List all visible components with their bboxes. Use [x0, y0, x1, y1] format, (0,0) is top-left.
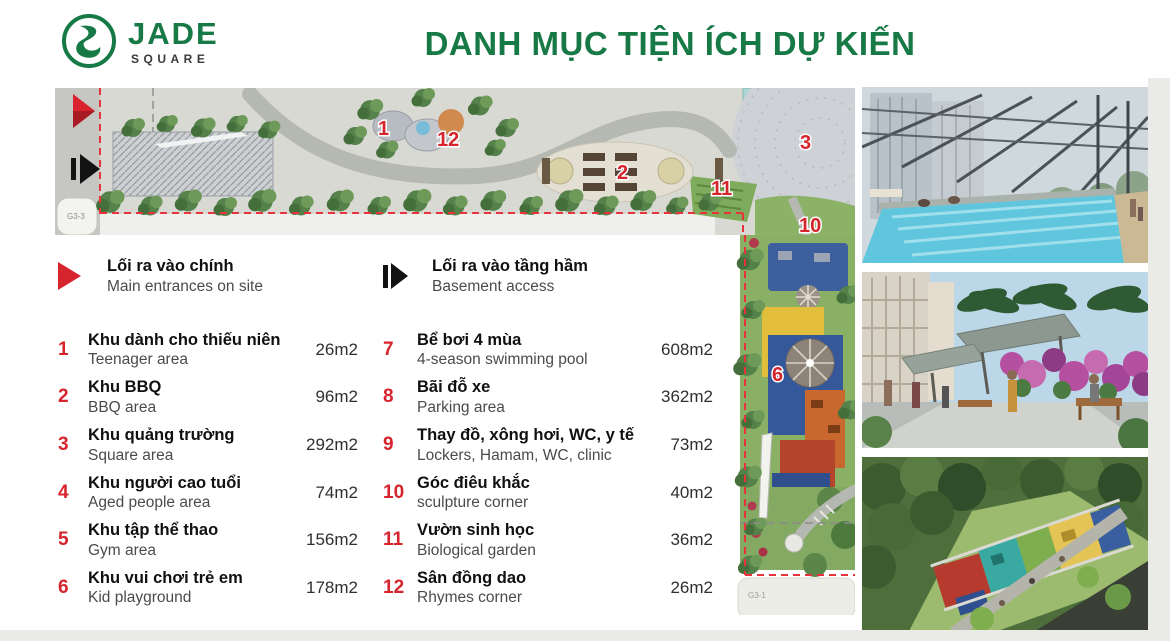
plot-label-bottom: G3-1 [748, 591, 766, 600]
page-title: DANH MỤC TIỆN ÍCH DỰ KIẾN [390, 25, 950, 63]
amenity-row: 3 Khu quảng trườngSquare area 292m2 [58, 421, 358, 469]
page-edge-right [1148, 78, 1170, 641]
plot-label-left: G3-3 [67, 212, 85, 221]
amenity-name-vi: Khu quảng trường [88, 425, 294, 446]
amenity-number: 6 [58, 577, 88, 599]
legend-column-left: Lối ra vào chính Main entrances on site … [58, 246, 358, 612]
amenity-row: 7 Bể bơi 4 mùa4-season swimming pool 608… [383, 326, 713, 374]
jade-square-logo: JADE SQUARE [60, 12, 219, 70]
amenity-area: 178m2 [294, 578, 358, 598]
entrance-name-en: Main entrances on site [107, 277, 358, 296]
map-marker-11: 11 [711, 178, 732, 200]
amenity-name-en: Lockers, Hamam, WC, clinic [417, 446, 649, 465]
site-plan-strip-drawing: G3-1 6 [710, 235, 855, 615]
map-marker-1: 1 [378, 118, 389, 140]
photo-aerial-playground [862, 457, 1148, 633]
amenity-number: 7 [383, 339, 417, 361]
amenity-number: 12 [383, 577, 417, 599]
amenity-number: 9 [383, 434, 417, 456]
legend-main-entrance: Lối ra vào chính Main entrances on site [58, 246, 358, 306]
amenity-number: 1 [58, 339, 88, 361]
amenity-name-vi: Khu dành cho thiếu niên [88, 330, 294, 351]
amenity-number: 2 [58, 386, 88, 408]
amenity-area: 96m2 [294, 387, 358, 407]
photo-indoor-pool [862, 87, 1148, 263]
amenity-list-right: 7 Bể bơi 4 mùa4-season swimming pool 608… [383, 326, 713, 612]
logo-brand-text: JADE [128, 18, 219, 49]
legend-column-right: Lối ra vào tầng hầm Basement access 7 Bể… [383, 246, 713, 612]
amenity-number: 11 [383, 529, 417, 551]
amenity-row: 6 Khu vui chơi trẻ emKid playground 178m… [58, 564, 358, 612]
amenity-name-en: Gym area [88, 541, 294, 560]
amenity-name-en: Rhymes corner [417, 588, 649, 607]
logo-sub-text: SQUARE [128, 53, 219, 65]
amenity-name-vi: Khu BBQ [88, 377, 294, 398]
amenity-name-en: sculpture corner [417, 493, 649, 512]
jade-logo-icon [60, 12, 118, 70]
entrance-name-vi: Lối ra vào chính [107, 256, 358, 277]
amenity-area: 74m2 [294, 483, 358, 503]
amenity-area: 36m2 [649, 530, 713, 550]
site-plan-band-drawing: G3-3 [55, 88, 855, 235]
main-entrance-icon [58, 262, 94, 290]
amenity-number: 10 [383, 482, 417, 504]
amenity-area: 40m2 [649, 483, 713, 503]
basement-access-icon [383, 263, 419, 289]
map-marker-2: 2 [617, 162, 628, 184]
map-marker-6: 6 [772, 364, 783, 386]
amenity-row: 5 Khu tập thể thaoGym area 156m2 [58, 516, 358, 564]
amenity-name-vi: Bãi đỗ xe [417, 377, 649, 398]
amenity-row: 10 Góc điêu khắcsculpture corner 40m2 [383, 469, 713, 517]
amenity-name-vi: Góc điêu khắc [417, 473, 649, 494]
legend-basement-access: Lối ra vào tầng hầm Basement access [383, 246, 713, 306]
photo-garden-walkway [862, 272, 1148, 448]
brochure-page: JADE SQUARE DANH MỤC TIỆN ÍCH DỰ KIẾN [0, 0, 1170, 641]
amenity-row: 4 Khu người cao tuổiAged people area 74m… [58, 469, 358, 517]
map-marker-3: 3 [800, 132, 811, 154]
amenity-name-en: Teenager area [88, 350, 294, 369]
amenity-row: 8 Bãi đỗ xeParking area 362m2 [383, 374, 713, 422]
amenity-name-en: Kid playground [88, 588, 294, 607]
amenity-number: 8 [383, 386, 417, 408]
amenity-name-en: Biological garden [417, 541, 649, 560]
amenity-number: 4 [58, 482, 88, 504]
site-plan-band: G3-3 [55, 88, 855, 235]
amenity-name-vi: Khu vui chơi trẻ em [88, 568, 294, 589]
amenity-name-vi: Khu tập thể thao [88, 520, 294, 541]
amenity-name-vi: Vườn sinh học [417, 520, 649, 541]
amenity-area: 608m2 [649, 340, 713, 360]
amenity-number: 5 [58, 529, 88, 551]
amenity-area: 292m2 [294, 435, 358, 455]
amenity-name-en: 4-season swimming pool [417, 350, 649, 369]
amenity-area: 26m2 [649, 578, 713, 598]
amenity-row: 11 Vườn sinh họcBiological garden 36m2 [383, 516, 713, 564]
amenity-row: 9 Thay đồ, xông hơi, WC, y tếLockers, Ha… [383, 421, 713, 469]
amenity-row: 12 Sân đồng daoRhymes corner 26m2 [383, 564, 713, 612]
amenity-area: 73m2 [649, 435, 713, 455]
amenity-name-en: Aged people area [88, 493, 294, 512]
amenity-name-en: BBQ area [88, 398, 294, 417]
map-marker-10: 10 [799, 215, 821, 235]
amenity-name-vi: Sân đồng dao [417, 568, 649, 589]
map-marker-12: 12 [437, 129, 459, 151]
amenity-row: 2 Khu BBQBBQ area 96m2 [58, 374, 358, 422]
amenity-name-en: Square area [88, 446, 294, 465]
amenity-name-en: Parking area [417, 398, 649, 417]
amenity-name-vi: Khu người cao tuổi [88, 473, 294, 494]
amenity-name-vi: Thay đồ, xông hơi, WC, y tế [417, 425, 649, 446]
amenity-number: 3 [58, 434, 88, 456]
amenity-list-left: 1 Khu dành cho thiếu niênTeenager area 2… [58, 326, 358, 612]
site-plan-strip: G3-1 6 [710, 235, 855, 615]
entrance-name-en: Basement access [432, 277, 713, 296]
page-edge-bottom [0, 630, 1170, 641]
amenity-name-vi: Bể bơi 4 mùa [417, 330, 649, 351]
entrance-name-vi: Lối ra vào tầng hầm [432, 256, 713, 277]
amenity-area: 156m2 [294, 530, 358, 550]
amenity-area: 362m2 [649, 387, 713, 407]
amenity-area: 26m2 [294, 340, 358, 360]
amenity-row: 1 Khu dành cho thiếu niênTeenager area 2… [58, 326, 358, 374]
